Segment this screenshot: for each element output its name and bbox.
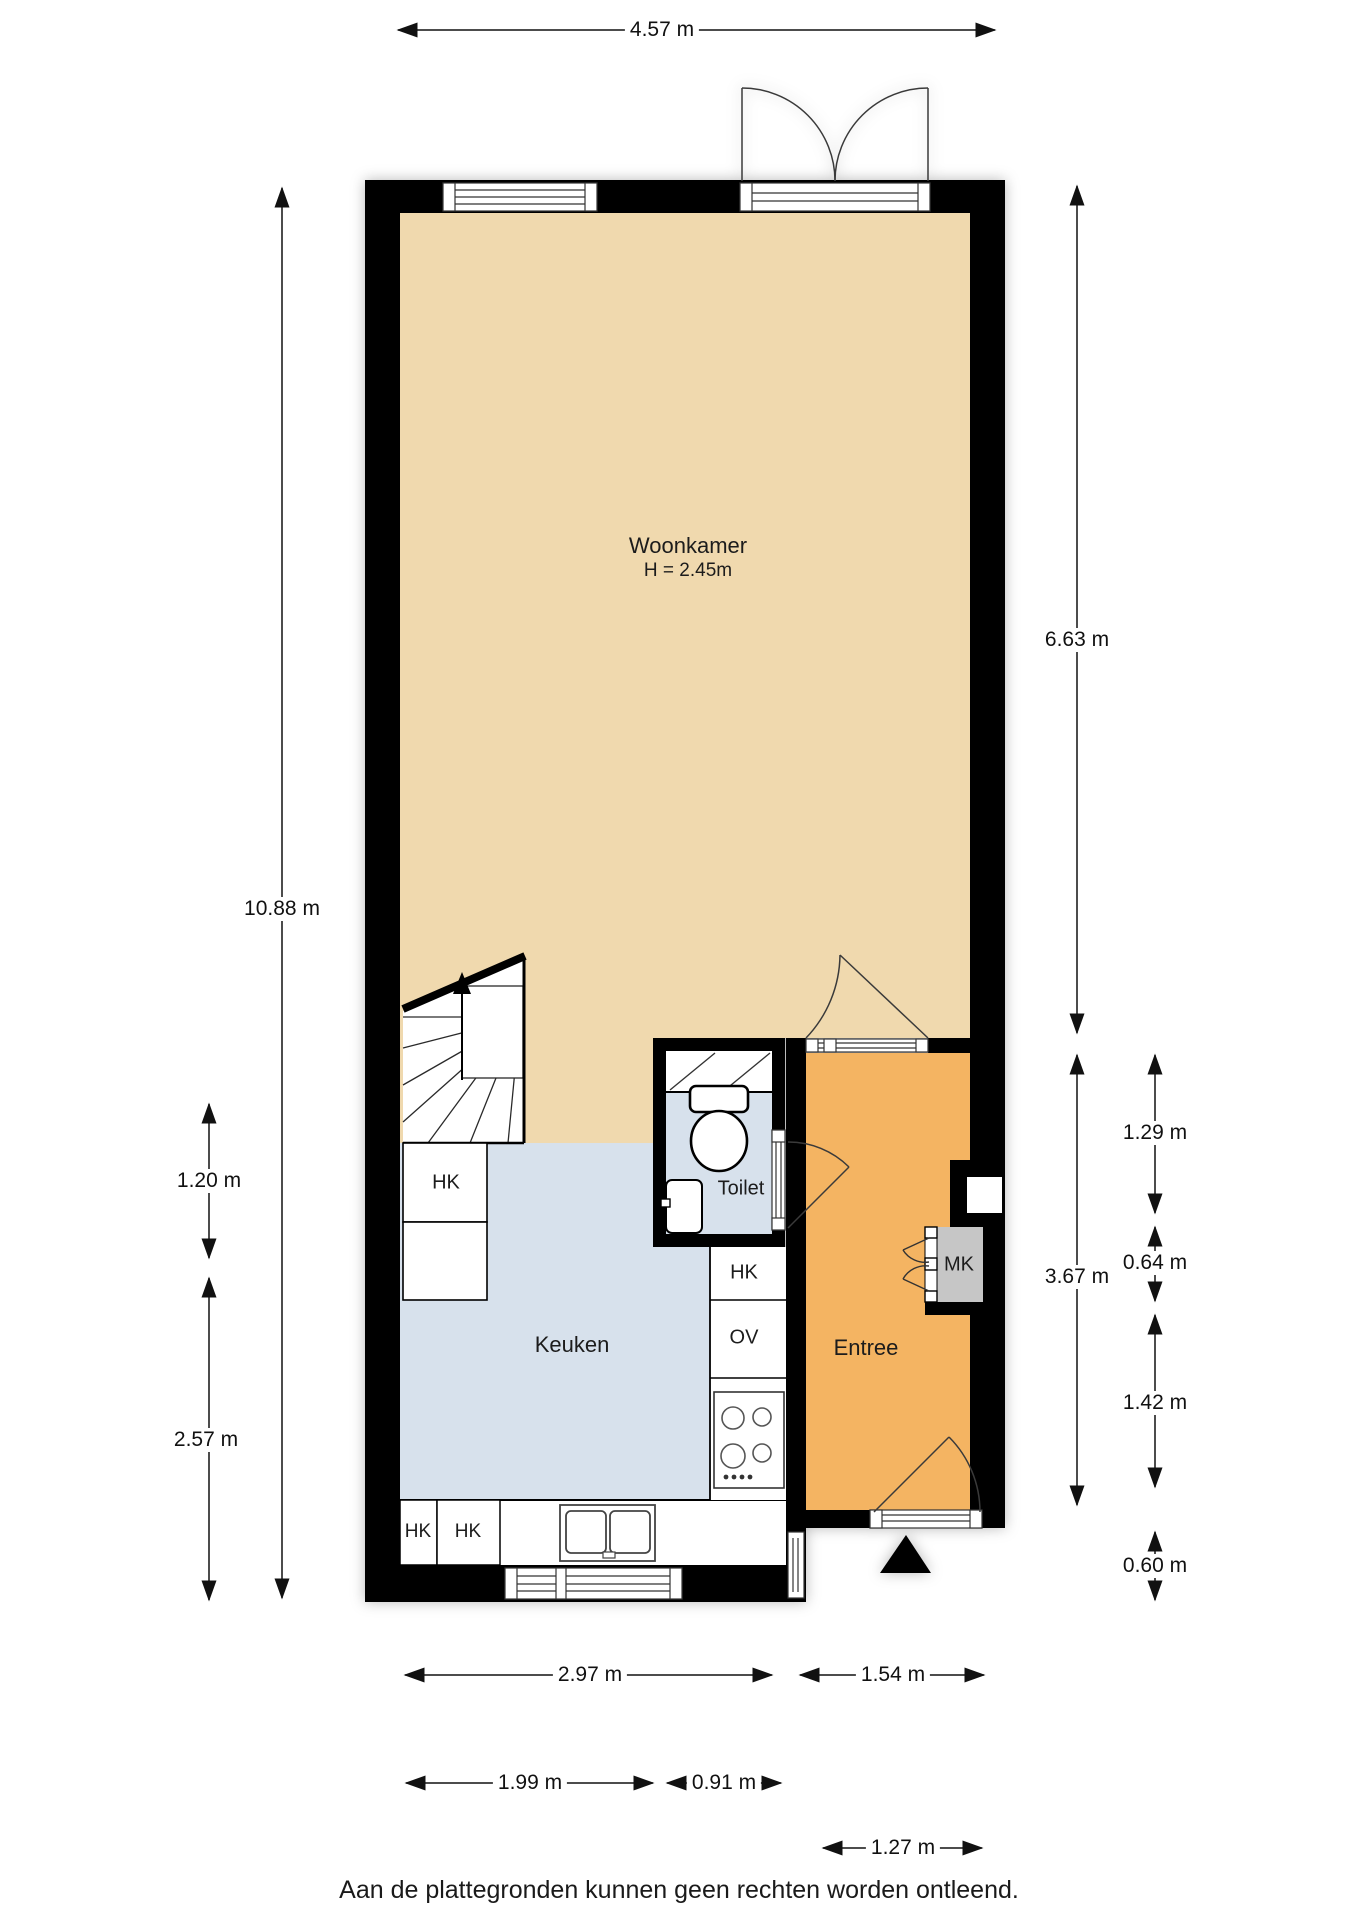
dim-right-living: 6.63 m bbox=[1040, 628, 1114, 652]
entrance-triangle-marker bbox=[880, 1535, 931, 1573]
dim-right-hall: 3.67 m bbox=[1040, 1265, 1114, 1289]
wall-left bbox=[365, 180, 400, 1602]
window-top bbox=[443, 183, 597, 211]
disclaimer-text: Aan de plattegronden kunnen geen rechten… bbox=[0, 1876, 1358, 1905]
window-divider-small bbox=[788, 1532, 804, 1598]
front-door-threshold bbox=[870, 1510, 982, 1528]
partition-living-entree bbox=[806, 1039, 928, 1052]
dim-right-seg-1: 1.29 m bbox=[1118, 1121, 1192, 1145]
floorplan-page: Woonkamer H = 2.45m Keuken Toilet Entree… bbox=[0, 0, 1358, 1920]
wall-mk-right bbox=[983, 1227, 1005, 1302]
closet-hk-base-1-label: HK bbox=[405, 1521, 431, 1543]
door-top-threshold bbox=[740, 183, 930, 211]
toilet-door-threshold bbox=[772, 1130, 785, 1230]
toilet-label: Toilet bbox=[718, 1178, 765, 1201]
closet-mk-label: MK bbox=[944, 1254, 974, 1277]
dim-bottom-entree: 1.54 m bbox=[856, 1663, 930, 1687]
kitchen-appliance-column bbox=[710, 1247, 786, 1500]
woonkamer-label: Woonkamer bbox=[629, 533, 747, 559]
toilet-fixture bbox=[690, 1086, 748, 1171]
closet-box-below-stairs bbox=[403, 1222, 487, 1300]
wall-mk-bottom bbox=[925, 1302, 1005, 1315]
wall-divider-entree bbox=[786, 1038, 806, 1602]
dim-left-total: 10.88 m bbox=[239, 897, 325, 921]
dim-right-seg-2: 0.64 m bbox=[1118, 1251, 1192, 1275]
toilet-room bbox=[653, 1038, 785, 1247]
closet-hk-stairs-label: HK bbox=[432, 1172, 460, 1195]
entree-label: Entree bbox=[834, 1335, 899, 1361]
dim-bottom-kitchen: 2.97 m bbox=[553, 1663, 627, 1687]
building bbox=[365, 88, 1005, 1602]
closet-hk-base-2-label: HK bbox=[455, 1521, 481, 1543]
closet-ov-label: OV bbox=[730, 1327, 759, 1350]
double-door-top-swing bbox=[742, 88, 928, 181]
dim-bottom-toilet: 0.91 m bbox=[687, 1771, 761, 1795]
dim-top-width: 4.57 m bbox=[625, 18, 699, 42]
dim-right-seg-3: 1.42 m bbox=[1118, 1391, 1192, 1415]
wall-living-entree bbox=[928, 1038, 970, 1053]
dim-left-upper: 1.20 m bbox=[172, 1169, 246, 1193]
wall-niche bbox=[967, 1177, 1002, 1213]
dim-right-seg-4: 0.60 m bbox=[1118, 1554, 1192, 1578]
kitchen-sink bbox=[560, 1505, 655, 1561]
window-bottom bbox=[505, 1568, 682, 1599]
dim-bottom-door: 1.27 m bbox=[866, 1836, 940, 1860]
floorplan-drawing bbox=[0, 0, 1358, 1920]
woonkamer-height-label: H = 2.45m bbox=[644, 560, 732, 582]
keuken-label: Keuken bbox=[535, 1332, 610, 1358]
closet-hk-column-label: HK bbox=[730, 1262, 758, 1285]
dim-left-lower: 2.57 m bbox=[169, 1428, 243, 1452]
wall-right bbox=[970, 180, 1005, 1528]
dim-bottom-left: 1.99 m bbox=[493, 1771, 567, 1795]
